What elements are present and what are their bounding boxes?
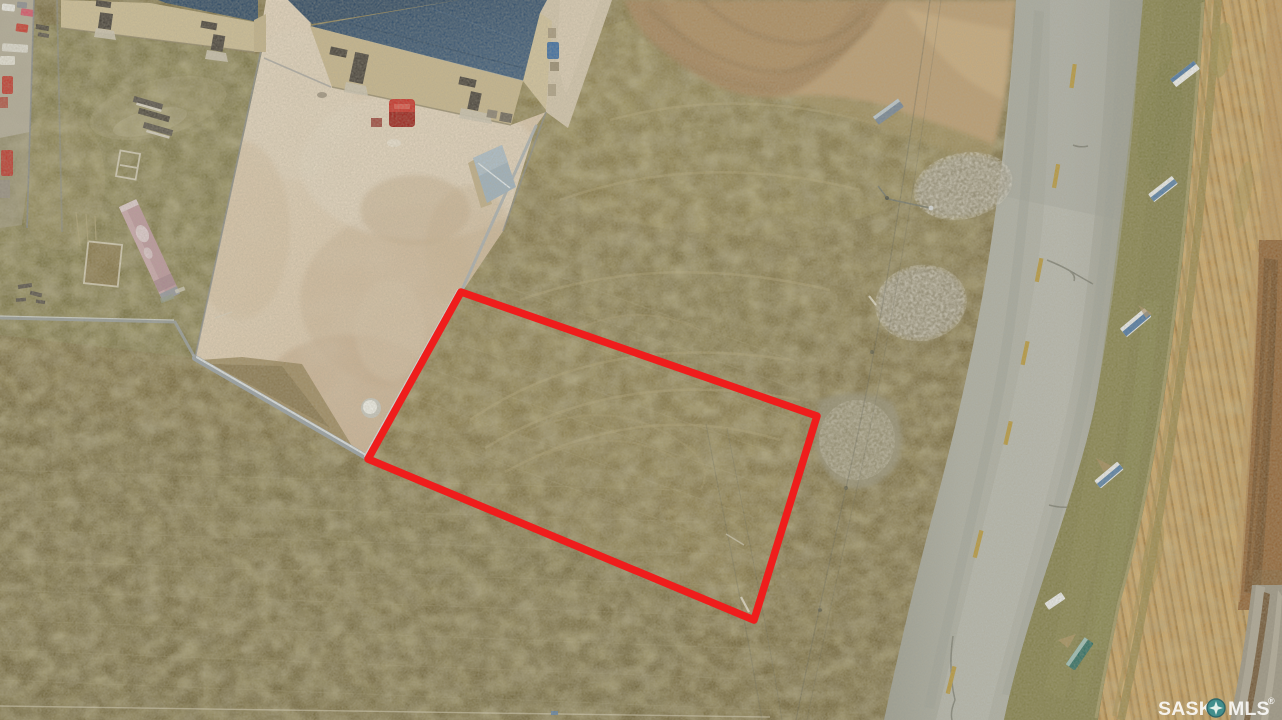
- svg-text:SASK: SASK: [1158, 698, 1213, 720]
- svg-text:MLS: MLS: [1228, 698, 1270, 720]
- svg-text:®: ®: [1268, 696, 1275, 706]
